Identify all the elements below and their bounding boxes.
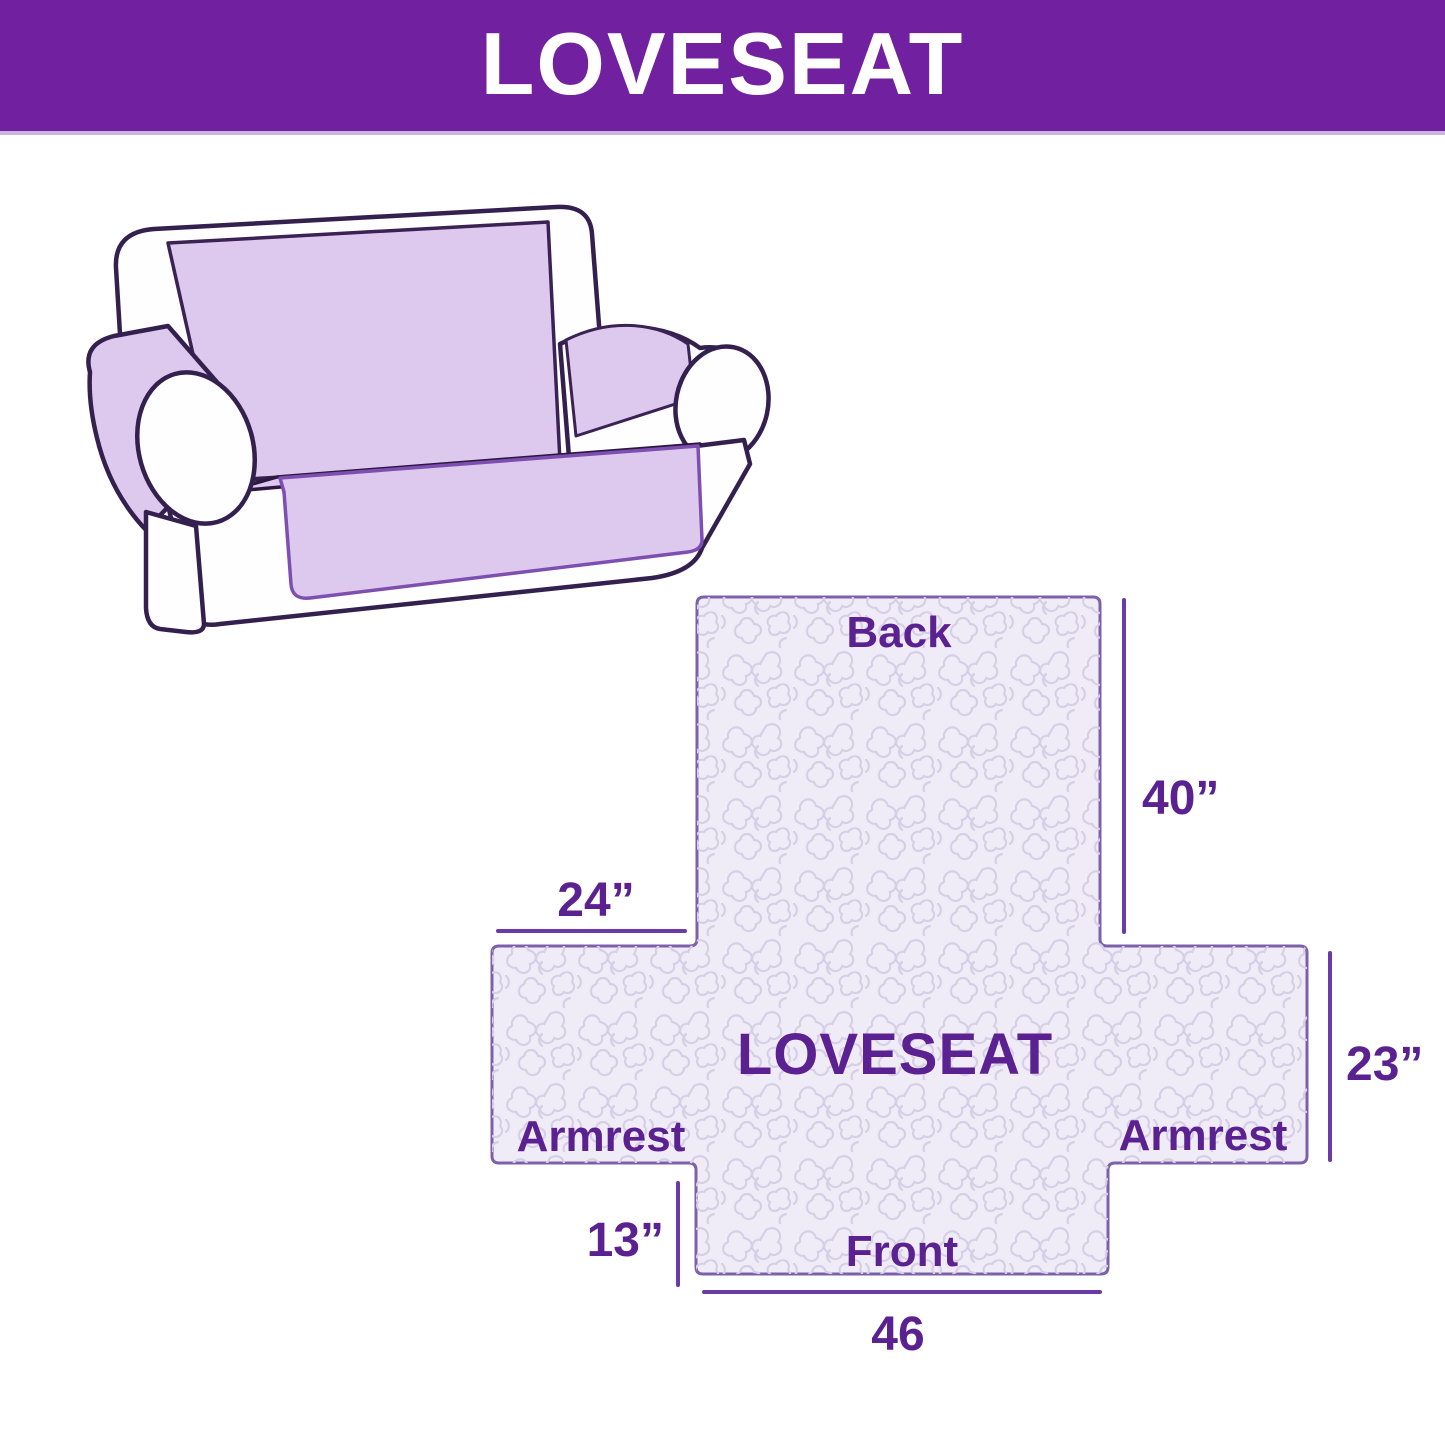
label-armrest-right: Armrest [1119,1111,1288,1160]
cover-shape [492,597,1307,1274]
banner-title: LOVESEAT [481,20,965,108]
label-center: LOVESEAT [737,1022,1053,1087]
dim-front-width: 46 [871,1308,924,1361]
sofa-left-arm-front [146,512,204,632]
cover-dimension-diagram: 40” 24” 23” 13” 46 Back LOVESEAT Armrest… [480,580,1420,1380]
label-armrest-left: Armrest [517,1112,686,1161]
header-banner: LOVESEAT [0,0,1445,135]
dim-front-flap-height: 13” [587,1214,664,1267]
label-back: Back [846,608,952,657]
dim-armrest-height: 23” [1346,1038,1420,1091]
label-front: Front [846,1227,959,1276]
dim-armrest-width: 24” [557,874,634,927]
dim-back-height: 40” [1142,772,1219,825]
